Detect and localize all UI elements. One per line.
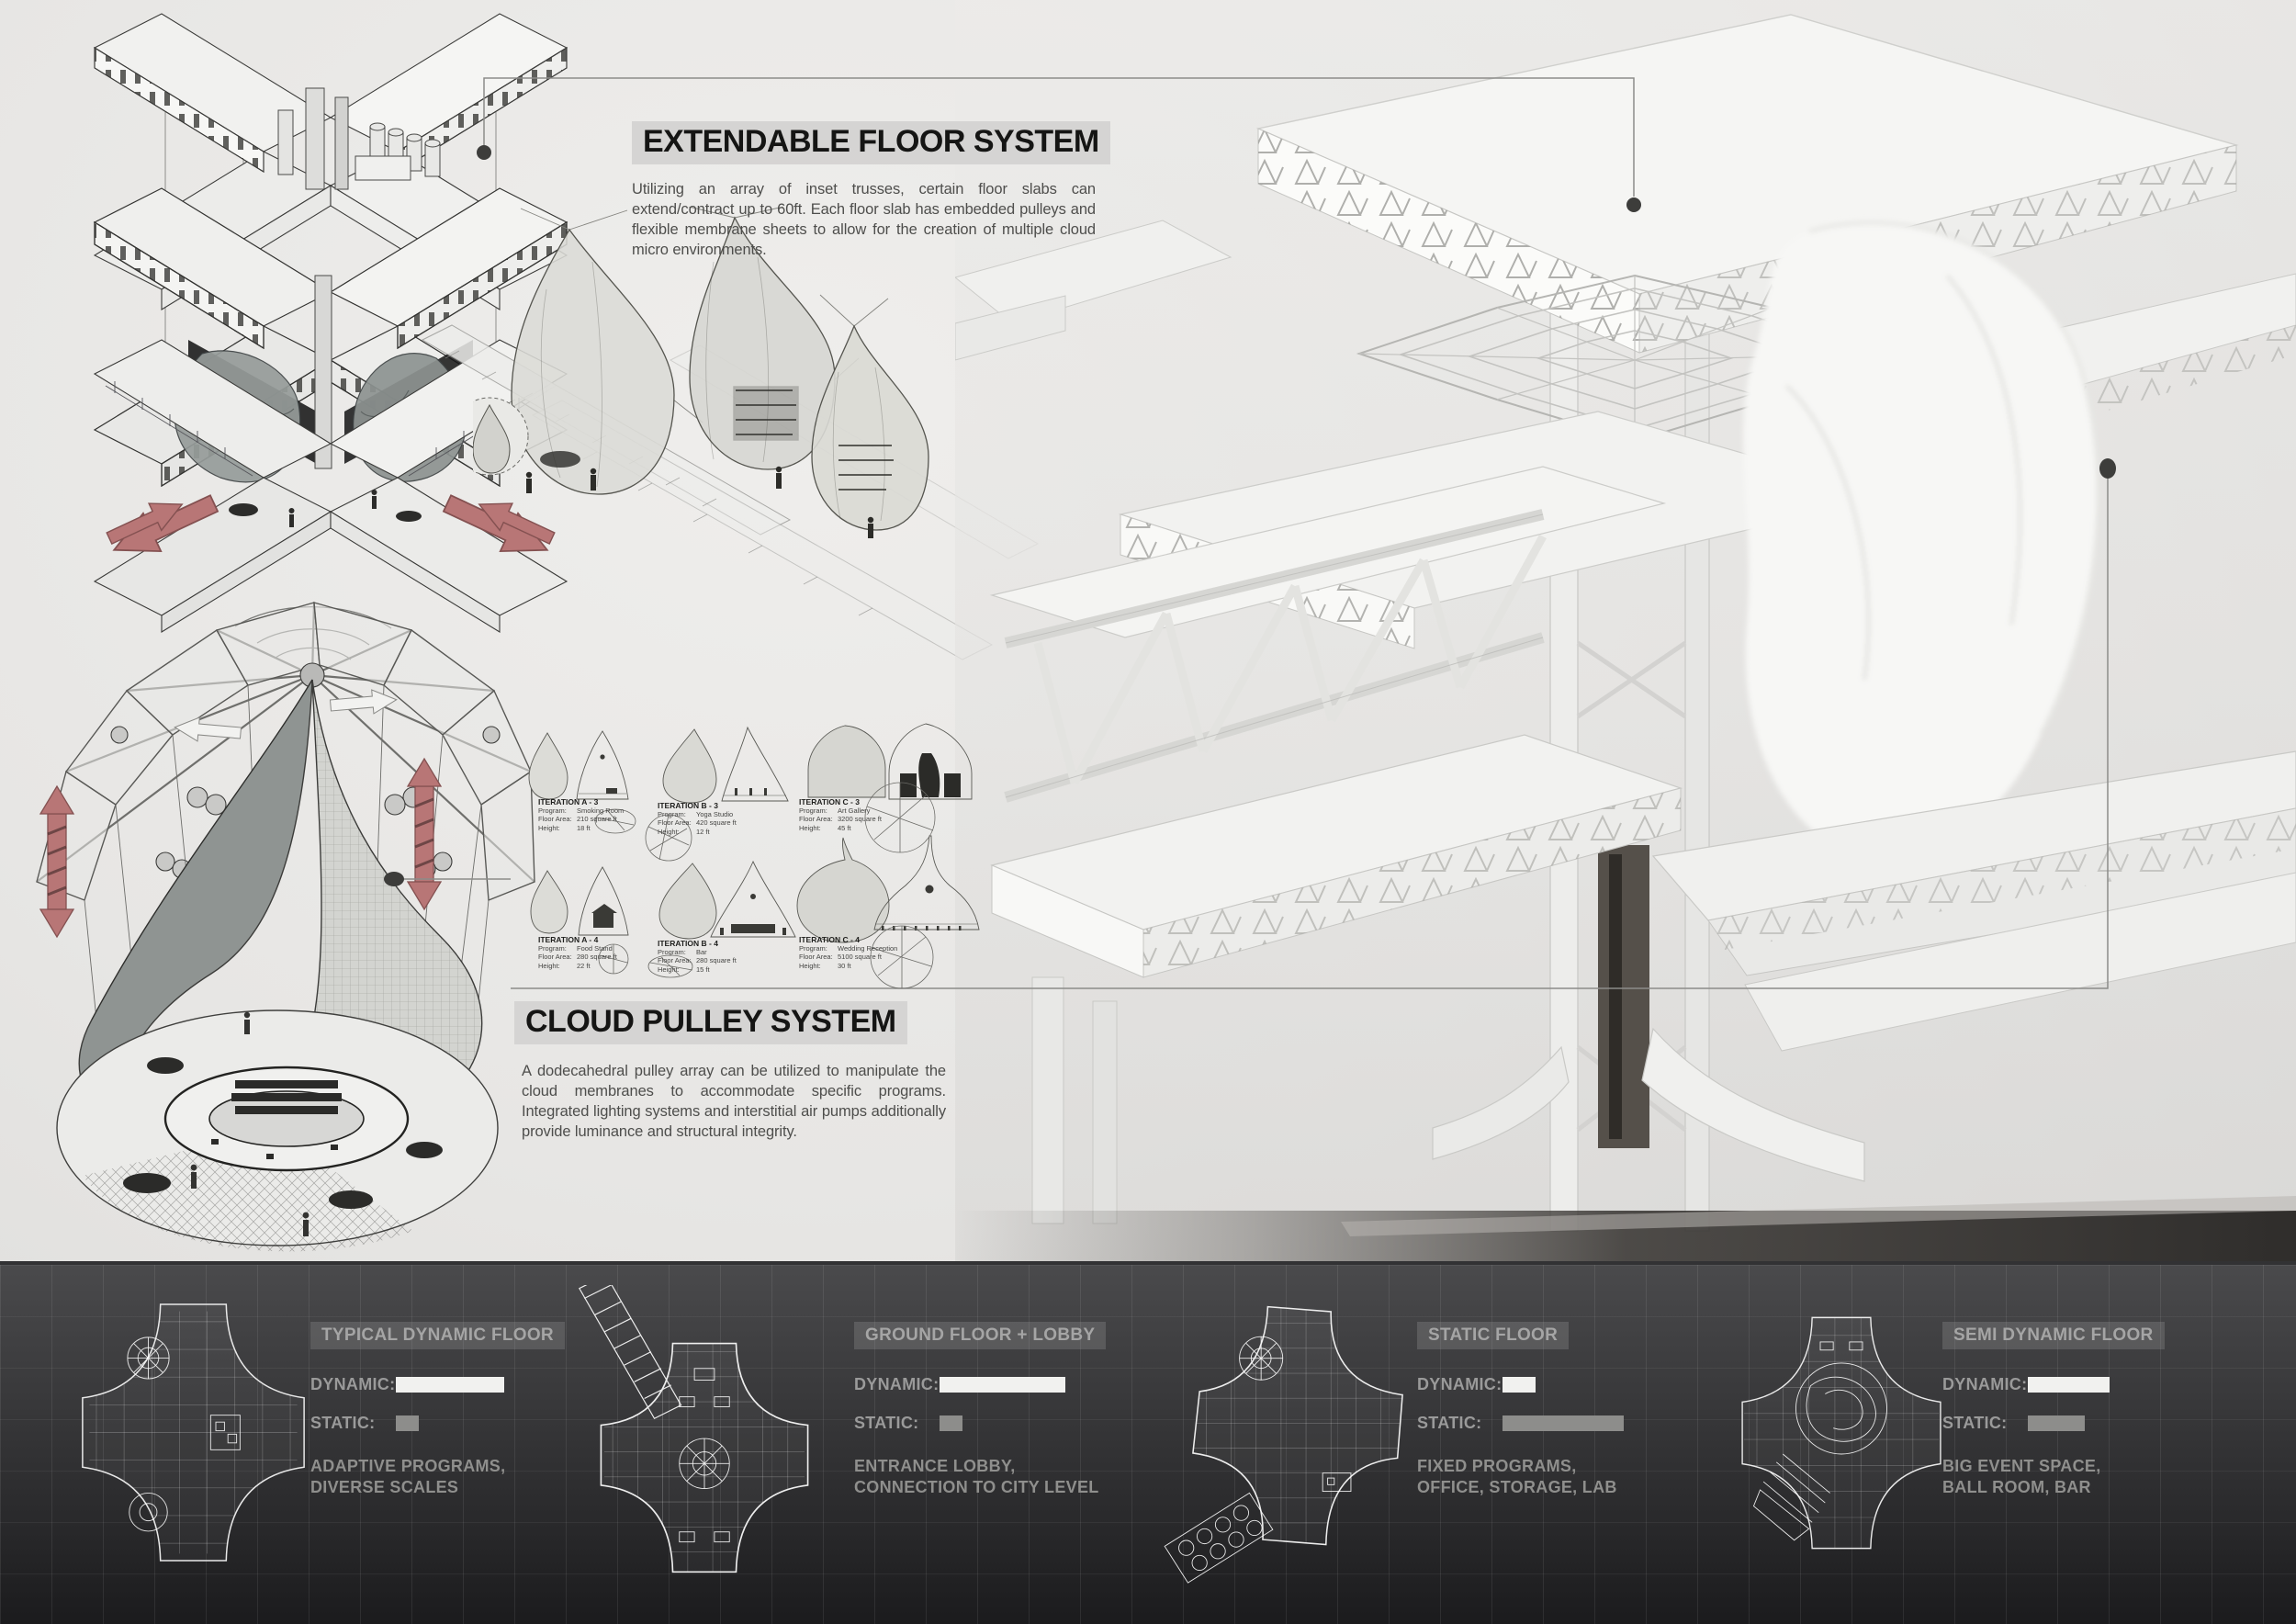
extendable-body: Utilizing an array of inset trusses, cer… — [632, 179, 1096, 260]
floor-type-title: GROUND FLOOR + LOBBY — [854, 1322, 1106, 1349]
extendable-floor-axon-drawing — [14, 0, 629, 634]
iteration-b3: ITERATION B - 3 Program:Yoga Studio Floo… — [658, 801, 766, 836]
presentation-board: EXTENDABLE FLOOR SYSTEM Utilizing an arr… — [0, 0, 2296, 1624]
extending-rail-drawing — [395, 303, 1056, 671]
dynamic-bar — [940, 1377, 1065, 1393]
dynamic-bar — [1503, 1377, 1536, 1393]
callout-dot-photo-cloud — [2099, 458, 2116, 479]
dynamic-bar — [396, 1377, 504, 1393]
iteration-matrix: ITERATION A - 3 Program:Smoking Room Flo… — [522, 716, 981, 992]
callout-dot-membrane — [384, 872, 404, 886]
floor-type-typical-dynamic: TYPICAL DYNAMIC FLOOR DYNAMIC: STATIC: A… — [310, 1322, 586, 1499]
cloud-pulley-body: A dodecahedral pulley array can be utili… — [522, 1061, 946, 1142]
floor-type-title: STATIC FLOOR — [1417, 1322, 1569, 1349]
tower-model-photo — [955, 0, 2296, 1265]
static-bar — [940, 1415, 962, 1431]
floor-types-strip: TYPICAL DYNAMIC FLOOR DYNAMIC: STATIC: A… — [0, 1265, 2296, 1624]
floor-type-ground-lobby: GROUND FLOOR + LOBBY DYNAMIC: STATIC: EN… — [854, 1322, 1130, 1499]
floor-type-title: TYPICAL DYNAMIC FLOOR — [310, 1322, 565, 1349]
dynamic-bar — [2028, 1377, 2110, 1393]
iteration-a3: ITERATION A - 3 Program:Smoking Room Flo… — [538, 797, 647, 832]
static-bar — [396, 1415, 419, 1431]
static-bar — [2028, 1415, 2085, 1431]
floor-type-title: SEMI DYNAMIC FLOOR — [1942, 1322, 2165, 1349]
floor-type-semi-dynamic: SEMI DYNAMIC FLOOR DYNAMIC: STATIC: BIG … — [1942, 1322, 2218, 1499]
callout-dot-axon — [477, 145, 491, 160]
iteration-a4: ITERATION A - 4 Program:Food Stand Floor… — [538, 935, 647, 970]
static-bar — [1503, 1415, 1624, 1431]
floor-type-static: STATIC FLOOR DYNAMIC: STATIC: FIXED PROG… — [1417, 1322, 1693, 1499]
extendable-title: EXTENDABLE FLOOR SYSTEM — [632, 121, 1110, 164]
cloud-pulley-system-section: CLOUD PULLEY SYSTEM A dodecahedral pulle… — [514, 1001, 946, 1142]
iteration-b4: ITERATION B - 4 Program:Bar Floor Area:2… — [658, 939, 766, 974]
cloud-pulley-title: CLOUD PULLEY SYSTEM — [514, 1001, 907, 1044]
pulley-motion-arrows — [40, 759, 441, 937]
iteration-c4: ITERATION C - 4 Program:Wedding Receptio… — [799, 935, 907, 970]
callout-dot-photo-top — [1626, 197, 1641, 212]
extendable-floor-system-section: EXTENDABLE FLOOR SYSTEM Utilizing an arr… — [632, 121, 1096, 260]
axon-flow-arrows — [103, 484, 558, 569]
cloud-pulley-axon-drawing — [28, 588, 560, 1258]
iteration-c3: ITERATION C - 3 Program:Art Gallery Floo… — [799, 797, 907, 832]
